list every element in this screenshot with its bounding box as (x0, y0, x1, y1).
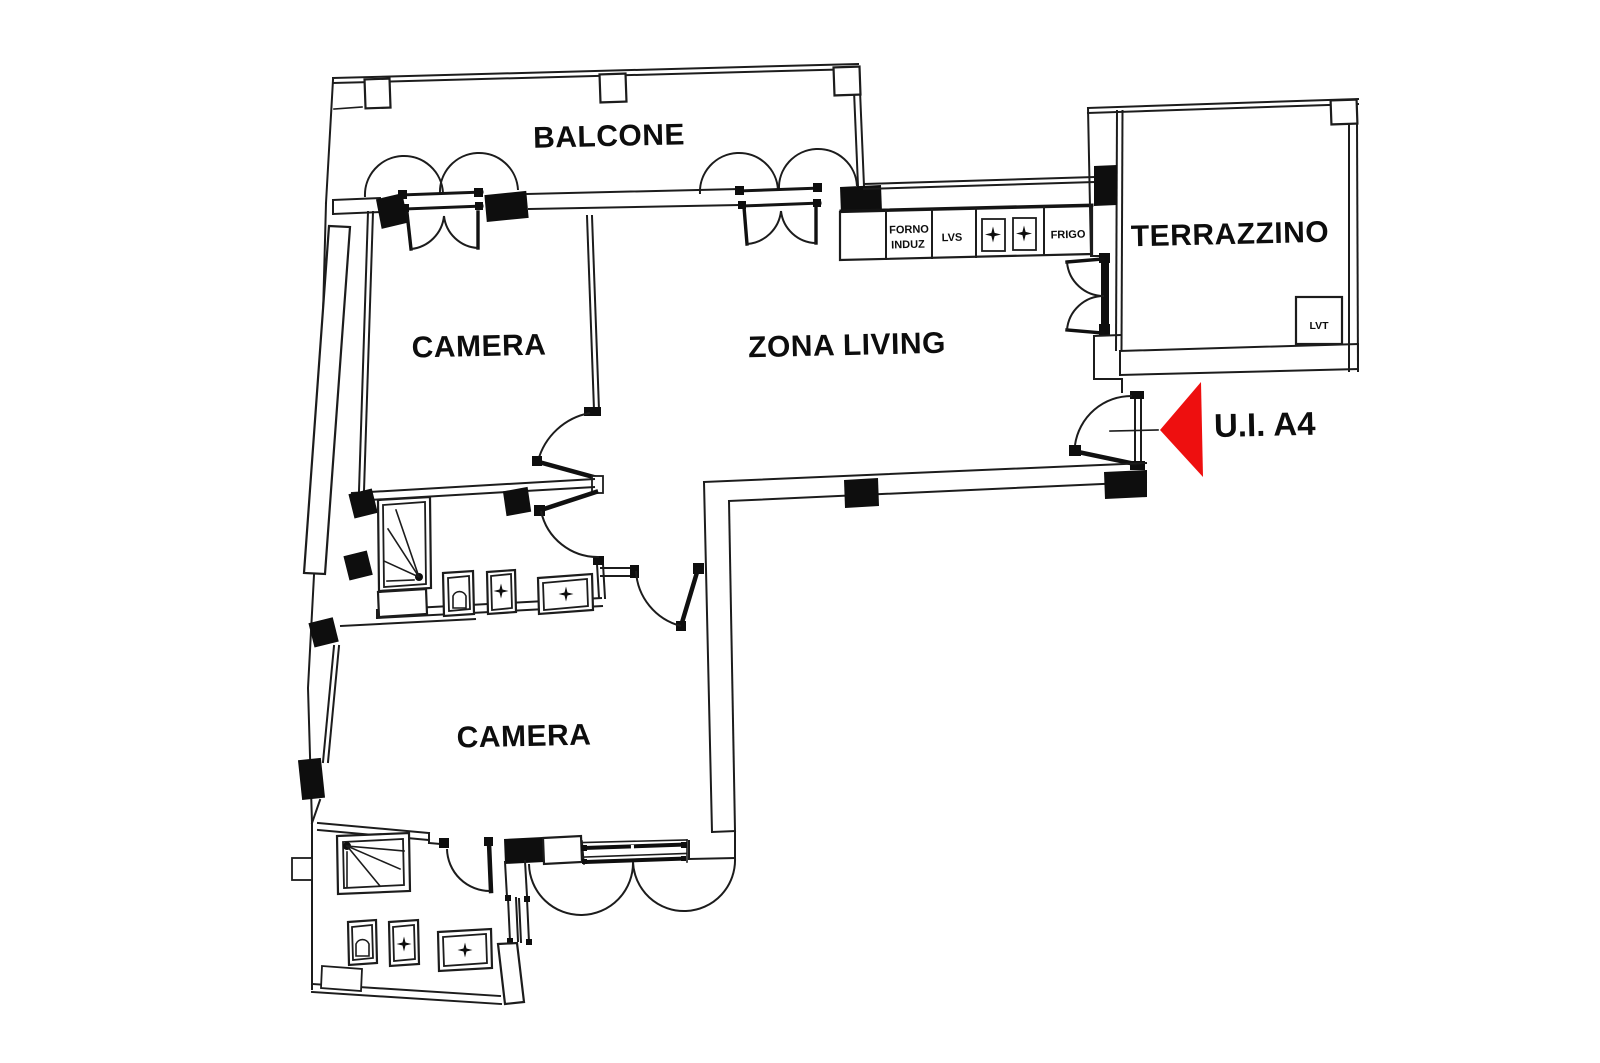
svg-text:BALCONE: BALCONE (533, 118, 686, 154)
svg-text:CAMERA: CAMERA (411, 328, 546, 364)
svg-text:ZONA LIVING: ZONA LIVING (748, 327, 946, 364)
svg-text:U.I. A4: U.I. A4 (1214, 405, 1317, 444)
svg-text:TERRAZZINO: TERRAZZINO (1130, 216, 1329, 253)
svg-text:CAMERA: CAMERA (456, 718, 591, 754)
svg-text:INDUZ: INDUZ (891, 239, 925, 252)
svg-text:FORNO: FORNO (889, 223, 929, 236)
svg-text:FRIGO: FRIGO (1050, 229, 1086, 242)
svg-text:LVS: LVS (942, 232, 963, 245)
svg-text:LVT: LVT (1309, 320, 1329, 332)
